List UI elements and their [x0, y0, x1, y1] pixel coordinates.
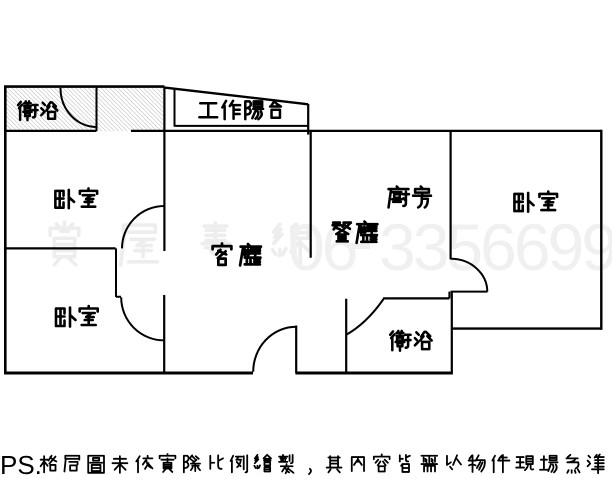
- svg-text:06: 06: [288, 210, 356, 284]
- svg-text:PS.: PS.: [0, 450, 42, 479]
- svg-text:3356699: 3356699: [379, 210, 612, 284]
